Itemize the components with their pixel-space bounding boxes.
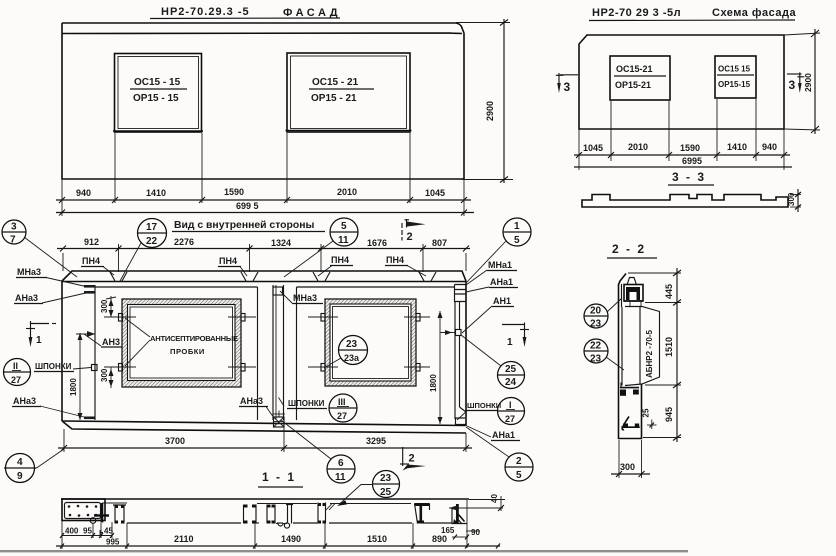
- svg-text:1: 1: [507, 337, 513, 348]
- svg-text:300: 300: [100, 368, 109, 382]
- svg-text:ОР15-21: ОР15-21: [615, 80, 651, 90]
- svg-text:1676: 1676: [367, 238, 387, 248]
- svg-text:1: 1: [514, 221, 520, 232]
- svg-text:400: 400: [65, 527, 79, 536]
- svg-text:45: 45: [104, 527, 113, 536]
- svg-text:90: 90: [471, 528, 480, 537]
- svg-text:445: 445: [664, 284, 674, 299]
- svg-text:7: 7: [10, 235, 16, 246]
- svg-text:5: 5: [514, 235, 520, 246]
- svg-text:3295: 3295: [366, 436, 386, 446]
- svg-text:9: 9: [17, 471, 23, 482]
- svg-text:4: 4: [17, 457, 23, 468]
- svg-text:ОР15 - 21: ОР15 - 21: [311, 93, 357, 104]
- svg-text:25: 25: [380, 487, 392, 498]
- svg-text:5: 5: [341, 221, 347, 232]
- svg-text:Вид с внутренней стороны: Вид с внутренней стороны: [174, 220, 314, 231]
- svg-text:1800: 1800: [69, 378, 78, 396]
- svg-text:ПН4: ПН4: [386, 255, 404, 265]
- svg-text:27: 27: [505, 414, 515, 424]
- svg-text:ШПОНКИ: ШПОНКИ: [288, 399, 325, 408]
- svg-text:2010: 2010: [337, 187, 357, 197]
- svg-text:300: 300: [787, 192, 796, 206]
- svg-text:11: 11: [335, 472, 346, 483]
- svg-text:27: 27: [337, 411, 347, 421]
- svg-text:300: 300: [620, 462, 635, 472]
- svg-text:912: 912: [84, 237, 99, 247]
- svg-text:1590: 1590: [224, 187, 244, 197]
- svg-text:24: 24: [505, 377, 517, 388]
- svg-text:23: 23: [590, 354, 602, 365]
- svg-text:1590: 1590: [680, 143, 700, 153]
- svg-text:2900: 2900: [485, 101, 495, 121]
- svg-text:2: 2: [407, 231, 413, 243]
- svg-text:23: 23: [346, 339, 358, 350]
- svg-text:25: 25: [505, 364, 517, 375]
- svg-text:23: 23: [590, 319, 602, 330]
- svg-text:807: 807: [432, 238, 447, 248]
- svg-text:27: 27: [11, 375, 21, 385]
- svg-text:ФАСАД: ФАСАД: [283, 7, 341, 19]
- svg-text:2010: 2010: [628, 142, 648, 152]
- svg-text:17: 17: [146, 222, 158, 233]
- svg-text:ПН4: ПН4: [82, 256, 100, 266]
- svg-text:2276: 2276: [174, 237, 194, 247]
- svg-text:ОС15 - 15: ОС15 - 15: [134, 77, 181, 88]
- svg-text:23а: 23а: [344, 353, 360, 363]
- svg-text:1410: 1410: [146, 188, 166, 198]
- svg-text:2900: 2900: [803, 73, 813, 92]
- svg-text:ОР15 - 15: ОР15 - 15: [133, 93, 179, 104]
- svg-text:95: 95: [83, 527, 92, 536]
- svg-text:40: 40: [490, 494, 499, 503]
- svg-text:МНа3: МНа3: [17, 267, 41, 277]
- svg-text:2: 2: [409, 453, 415, 465]
- svg-text:3: 3: [564, 80, 571, 94]
- svg-text:6: 6: [338, 458, 344, 469]
- svg-text:ПН4: ПН4: [331, 255, 349, 265]
- svg-text:НР2-70 29 3 -5л: НР2-70 29 3 -5л: [592, 7, 681, 19]
- svg-text:АБНР2 -70-5: АБНР2 -70-5: [645, 329, 654, 378]
- svg-text:1045: 1045: [425, 188, 445, 198]
- svg-text:3: 3: [11, 222, 17, 233]
- svg-text:III: III: [338, 397, 346, 407]
- svg-text:6995: 6995: [682, 156, 702, 166]
- svg-text:I: I: [509, 400, 512, 410]
- svg-text:2 - 2: 2 - 2: [612, 242, 646, 256]
- svg-text:3: 3: [789, 78, 796, 92]
- svg-text:ОС15 - 21: ОС15 - 21: [312, 77, 359, 88]
- svg-text:11: 11: [338, 235, 349, 246]
- svg-text:ШПОНКИ: ШПОНКИ: [35, 362, 72, 371]
- svg-text:1410: 1410: [727, 142, 747, 152]
- svg-text:НР2-70.29.3 -5: НР2-70.29.3 -5: [161, 6, 250, 18]
- svg-text:945: 945: [664, 407, 674, 422]
- svg-text:1510: 1510: [664, 337, 674, 357]
- svg-text:ОС15-21: ОС15-21: [616, 64, 653, 74]
- svg-text:22: 22: [146, 236, 158, 247]
- svg-text:1324: 1324: [271, 238, 291, 248]
- svg-text:АН3: АН3: [102, 337, 120, 347]
- svg-text:5: 5: [516, 470, 522, 481]
- svg-text:995: 995: [106, 538, 120, 547]
- svg-text:1 - 1: 1 - 1: [262, 470, 296, 484]
- svg-text:АН1: АН1: [493, 296, 511, 306]
- svg-text:ПН4: ПН4: [219, 256, 237, 266]
- svg-text:1510: 1510: [367, 534, 387, 544]
- svg-text:1800: 1800: [429, 374, 438, 392]
- svg-text:699 5: 699 5: [236, 201, 259, 211]
- svg-text:МНа1: МНа1: [488, 260, 512, 270]
- svg-text:1490: 1490: [281, 534, 301, 544]
- svg-text:ОР15-15: ОР15-15: [718, 80, 751, 89]
- svg-text:АНа3: АНа3: [13, 396, 36, 406]
- svg-text:АНа3: АНа3: [240, 396, 263, 406]
- svg-text:23: 23: [380, 473, 392, 484]
- svg-text:3700: 3700: [165, 436, 185, 446]
- svg-text:25: 25: [642, 408, 651, 417]
- svg-text:ОС15 15: ОС15 15: [718, 65, 751, 74]
- svg-text:Схема фасада: Схема фасада: [712, 7, 797, 19]
- svg-text:АНа1: АНа1: [492, 430, 515, 440]
- svg-text:АНТИСЕПТИРОВАННЫЕ: АНТИСЕПТИРОВАННЫЕ: [150, 334, 238, 343]
- svg-text:МНа3: МНа3: [293, 293, 317, 303]
- svg-text:ШПОНКИ: ШПОНКИ: [467, 401, 501, 410]
- svg-text:1: 1: [36, 335, 42, 346]
- svg-text:1045: 1045: [583, 143, 603, 153]
- svg-text:II: II: [13, 361, 18, 371]
- svg-text:22: 22: [590, 341, 602, 352]
- svg-text:АНа3: АНа3: [15, 293, 38, 303]
- svg-text:3 - 3: 3 - 3: [672, 170, 706, 184]
- svg-text:940: 940: [76, 188, 91, 198]
- svg-text:2110: 2110: [174, 534, 194, 544]
- svg-text:300: 300: [100, 299, 109, 313]
- svg-text:165: 165: [441, 526, 455, 535]
- svg-text:ПРОБКИ: ПРОБКИ: [170, 347, 205, 356]
- svg-text:20: 20: [590, 306, 602, 317]
- svg-text:940: 940: [762, 142, 777, 152]
- svg-text:АНа1: АНа1: [490, 277, 513, 287]
- svg-text:890: 890: [432, 534, 447, 544]
- svg-text:2: 2: [516, 456, 522, 467]
